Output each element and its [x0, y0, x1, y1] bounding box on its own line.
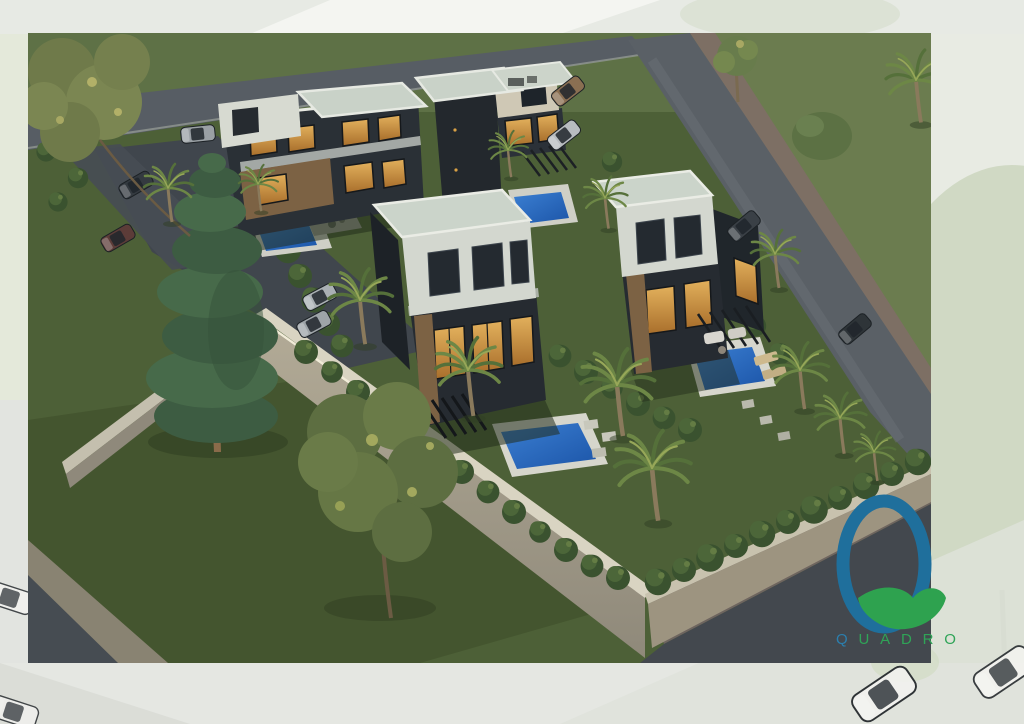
- quadro-logo: QUADRO: [828, 486, 968, 662]
- presentation-board: QUADRO: [0, 0, 1024, 724]
- car: [180, 124, 215, 143]
- brand-wordmark: QUADRO: [836, 632, 956, 647]
- render-photo: [20, 31, 947, 663]
